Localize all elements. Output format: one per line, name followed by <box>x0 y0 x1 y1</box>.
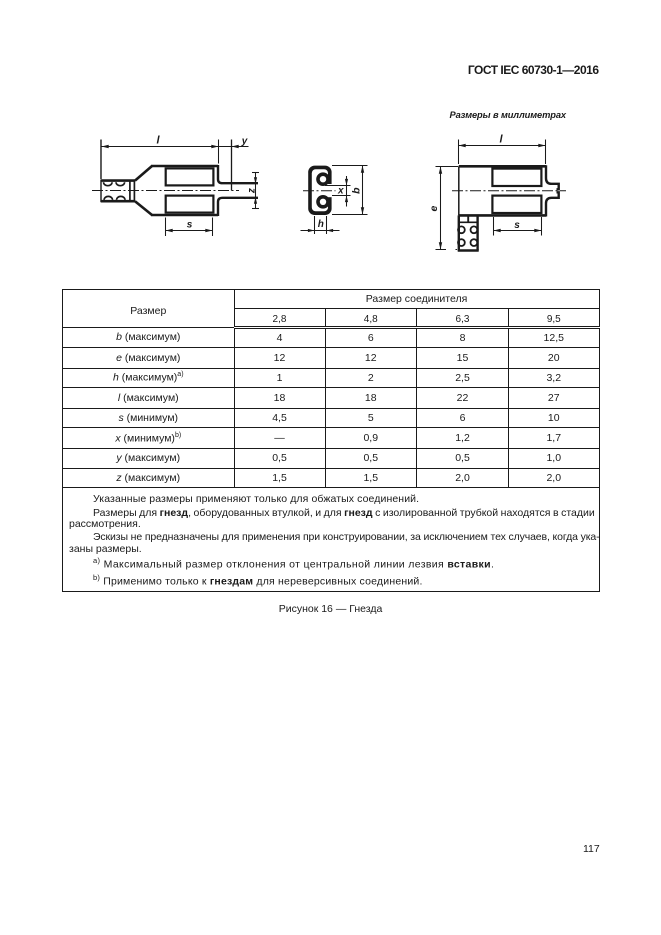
svg-text:x: x <box>337 186 344 197</box>
svg-text:b: b <box>351 187 363 194</box>
svg-text:s: s <box>514 220 520 231</box>
svg-text:e: e <box>428 206 440 212</box>
svg-text:l: l <box>499 134 503 146</box>
svg-text:s: s <box>187 220 193 231</box>
svg-text:h: h <box>318 219 324 230</box>
svg-text:l: l <box>156 135 160 147</box>
svg-text:z: z <box>247 188 258 194</box>
svg-text:y: y <box>241 136 248 147</box>
